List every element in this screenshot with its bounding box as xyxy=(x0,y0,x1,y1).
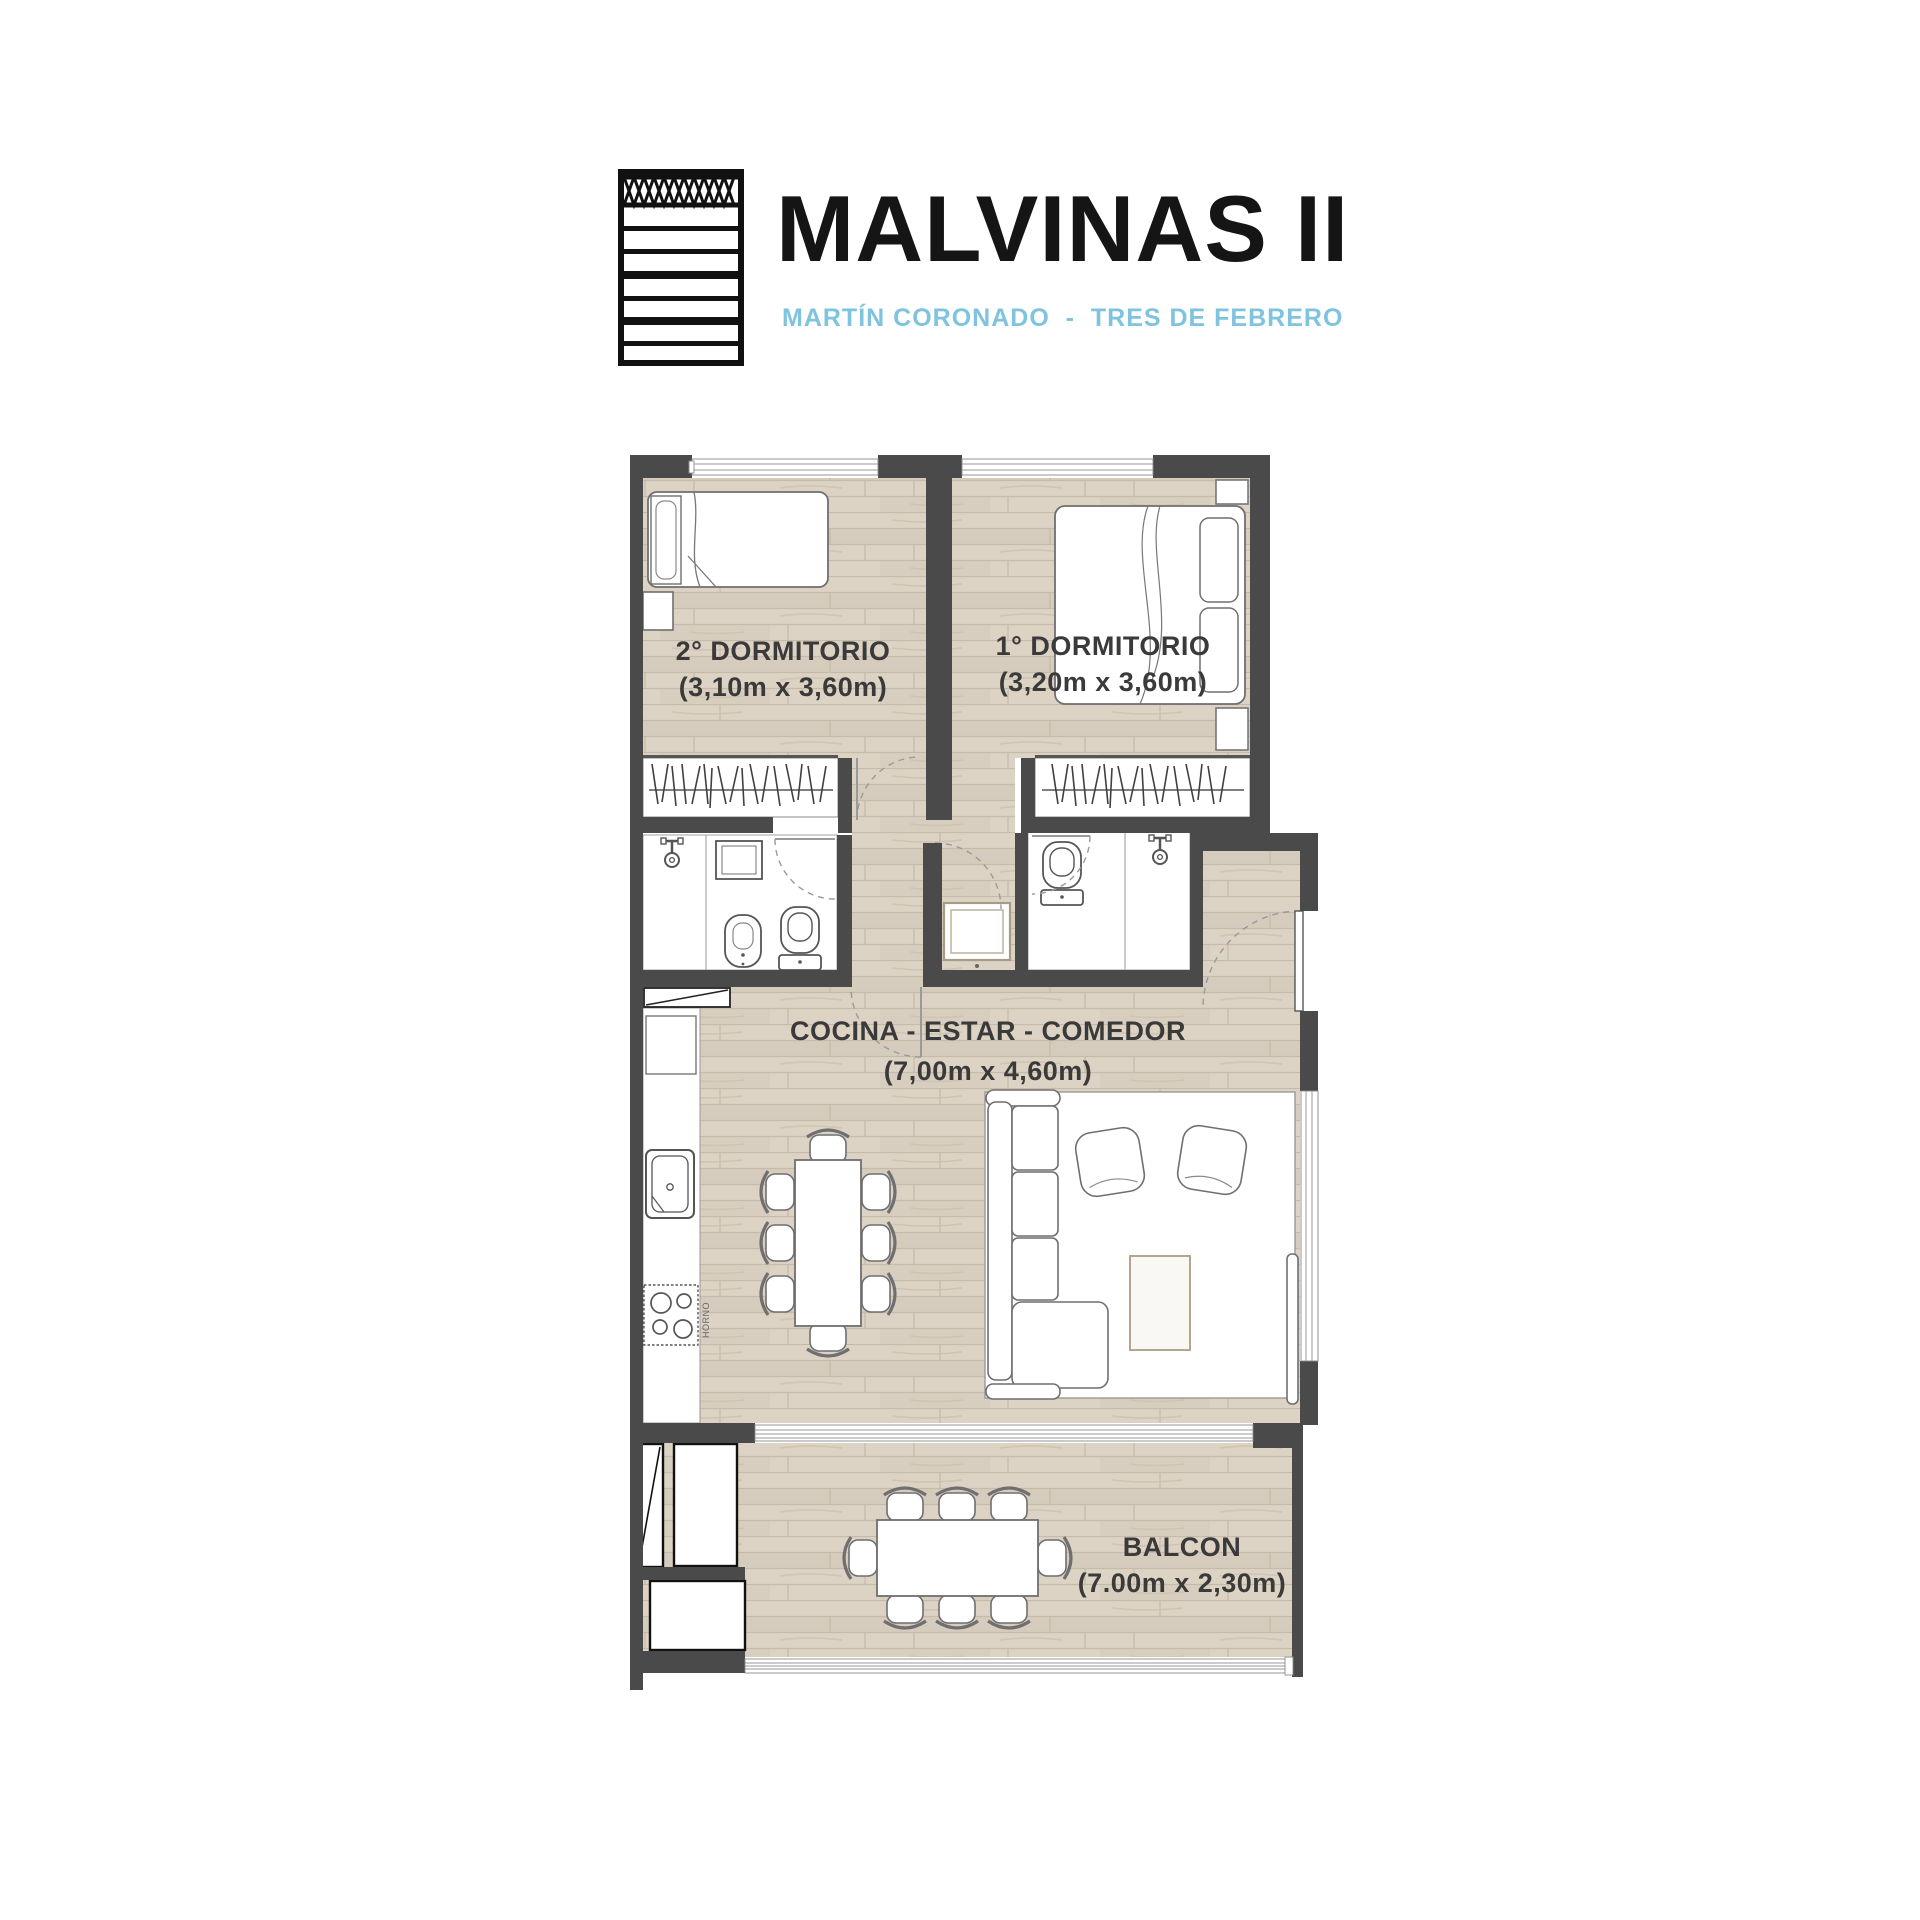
dining-chair xyxy=(761,1273,794,1315)
bidet xyxy=(725,915,761,967)
dining-chair xyxy=(761,1222,794,1264)
sliding-door-balcony xyxy=(755,1425,1253,1441)
balcony-chair xyxy=(988,1488,1030,1521)
living-set xyxy=(985,1090,1298,1404)
bath-sink xyxy=(716,841,762,879)
tv-console xyxy=(1287,1254,1298,1404)
pouf xyxy=(1175,1123,1248,1196)
chaise xyxy=(1012,1302,1108,1388)
bedroom2-label: 2° DORMITORIO xyxy=(676,636,891,666)
coffee-table xyxy=(1130,1256,1190,1350)
living-dims: (7,00m x 4,60m) xyxy=(884,1056,1093,1086)
bedroom2-dims: (3,10m x 3,60m) xyxy=(679,672,888,702)
living-label: COCINA - ESTAR - COMEDOR xyxy=(790,1016,1186,1046)
entry-door-leaf xyxy=(1295,911,1303,1011)
dining-chair xyxy=(807,1130,849,1163)
shaft-box xyxy=(650,1581,745,1650)
kitchen-sink xyxy=(646,1150,694,1218)
page: { "header": { "title": "MALVINAS II", "s… xyxy=(0,0,1920,1920)
balcony-chair xyxy=(884,1595,926,1628)
window-bedroom2 xyxy=(689,459,878,475)
dining-chair xyxy=(862,1171,895,1213)
balcony-table xyxy=(877,1520,1038,1596)
wall-right-living xyxy=(1300,1361,1318,1425)
service-boxes xyxy=(636,1444,745,1650)
pouf xyxy=(1073,1125,1146,1198)
balcony-chair xyxy=(936,1595,978,1628)
balcony-dims: (7.00m x 2,30m) xyxy=(1078,1568,1287,1598)
shaft-box xyxy=(674,1444,737,1566)
wall-right-upper xyxy=(1250,455,1270,851)
balcony-chair xyxy=(1038,1537,1071,1579)
wall-entry-top xyxy=(1190,833,1318,851)
wall-bedroom-divider xyxy=(926,478,952,820)
balcony-chair xyxy=(884,1488,926,1521)
window-living-side xyxy=(1301,1091,1318,1361)
wall-right-balcony xyxy=(1292,1448,1303,1677)
project-title: MALVINAS II xyxy=(776,178,1416,280)
balcony-label: BALCON xyxy=(1123,1532,1242,1562)
entry-floor xyxy=(1190,851,1300,987)
toilet-icon xyxy=(779,907,821,970)
dining-chair xyxy=(761,1171,794,1213)
stove-label: HORNO xyxy=(701,1302,711,1338)
dining-chair xyxy=(862,1273,895,1315)
entry-shelf xyxy=(644,988,730,1007)
single-bed xyxy=(648,492,828,587)
nightstand xyxy=(1216,708,1248,750)
pillow xyxy=(1200,518,1238,602)
balcony-chair xyxy=(844,1537,877,1579)
project-subtitle: MARTÍN CORONADO - TRES DE FEBRERO xyxy=(782,303,1422,333)
building-facade-logo xyxy=(618,169,744,366)
nightstand xyxy=(643,592,673,630)
bedroom1-dims: (3,20m x 3,60m) xyxy=(999,667,1208,697)
closet-bedroom1 xyxy=(1035,758,1250,817)
toilet-icon xyxy=(1041,842,1083,905)
balcony-chair xyxy=(936,1488,978,1521)
floor-plan: HORNO xyxy=(615,440,1360,1735)
dining-table xyxy=(795,1160,861,1326)
bedroom1-label: 1° DORMITORIO xyxy=(996,631,1211,661)
dining-chair xyxy=(862,1222,895,1264)
nightstand xyxy=(1216,480,1248,504)
balcony-railing xyxy=(745,1657,1293,1675)
closet-bedroom2 xyxy=(643,758,838,817)
hall-vanity xyxy=(944,903,1010,968)
wall-left xyxy=(630,455,643,1690)
dining-chair xyxy=(807,1323,849,1356)
fridge xyxy=(646,1016,696,1074)
balcony-chair xyxy=(988,1595,1030,1628)
window-bedroom1 xyxy=(962,459,1153,475)
